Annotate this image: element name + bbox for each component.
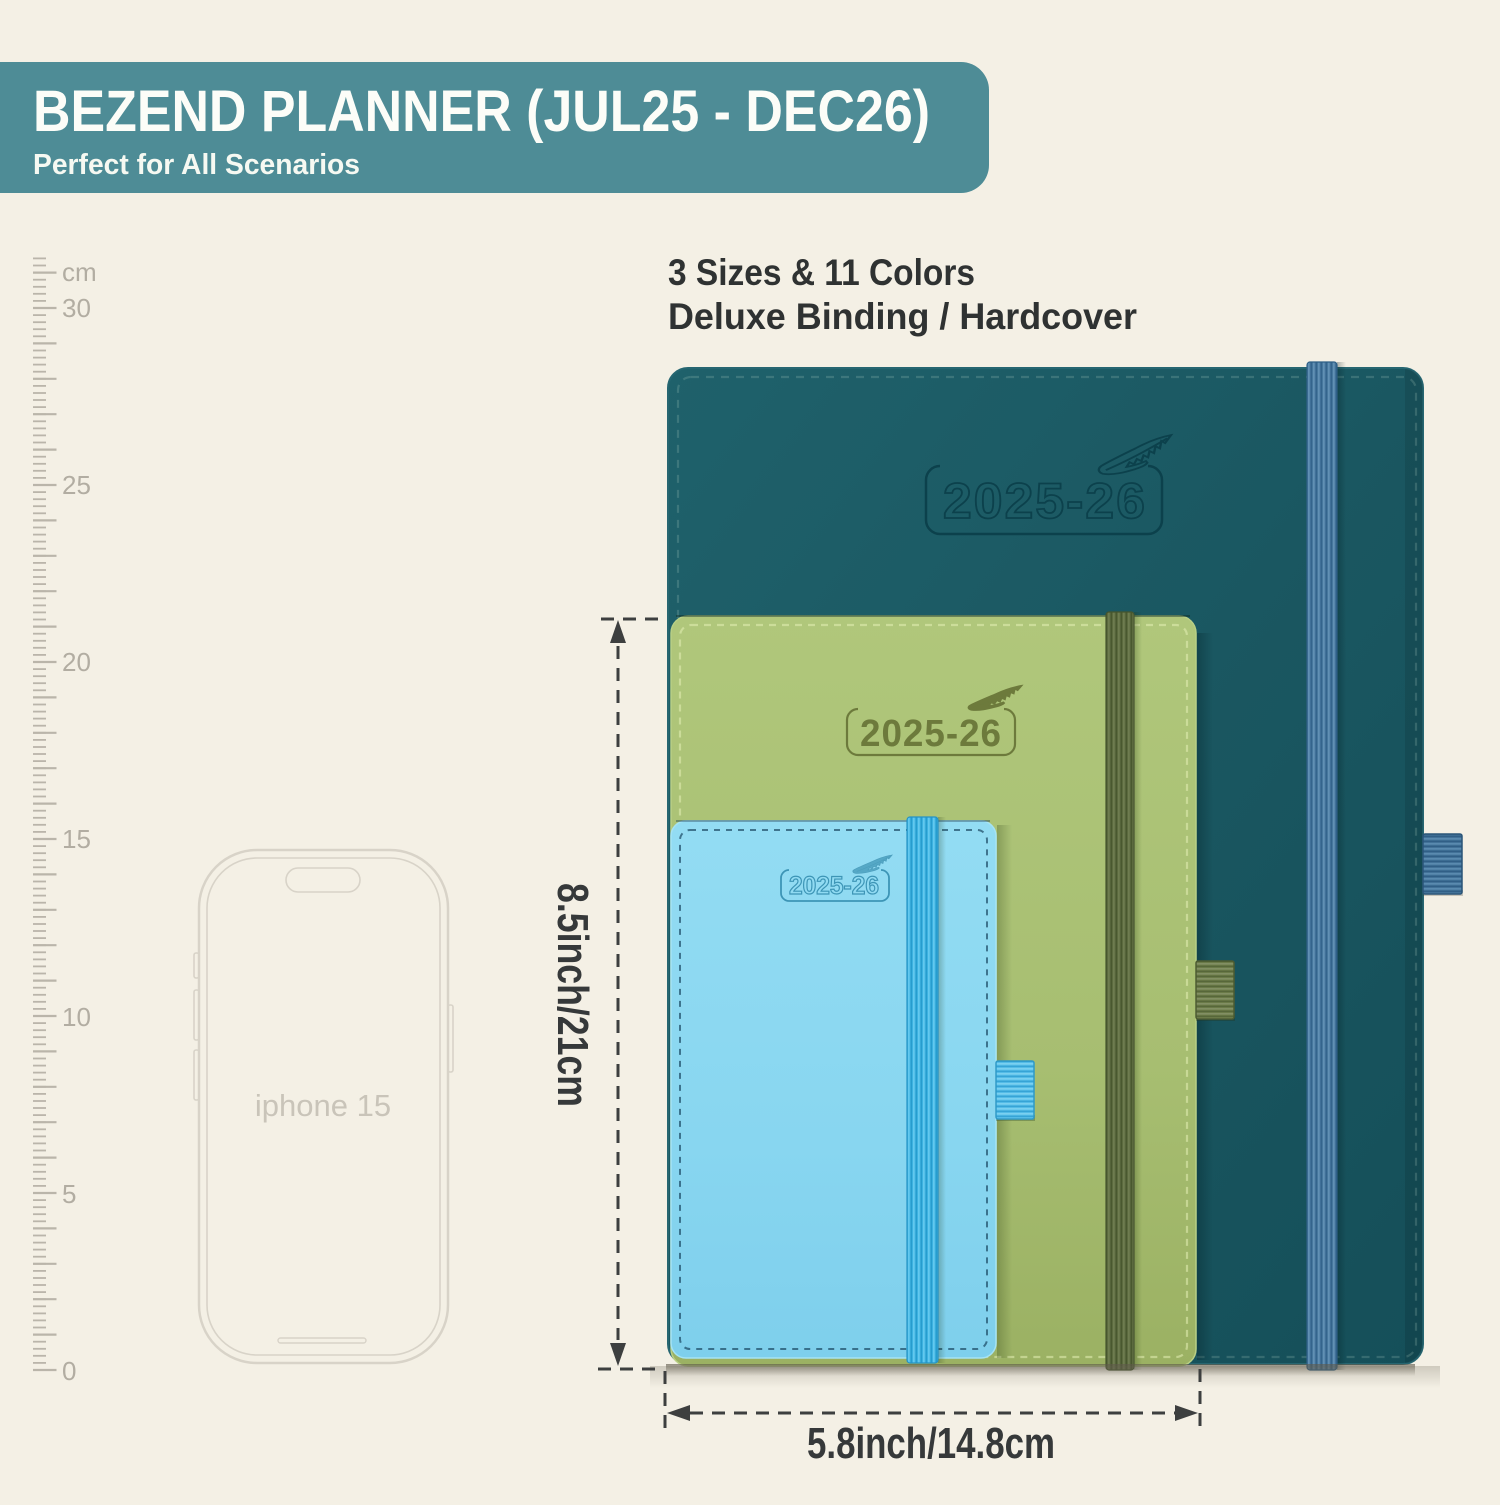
svg-text:2025-26: 2025-26 (943, 473, 1147, 529)
svg-text:30: 30 (62, 293, 91, 323)
svg-text:25: 25 (62, 470, 91, 500)
svg-text:2025-26: 2025-26 (860, 713, 1002, 755)
svg-text:BEZEND PLANNER (JUL25 - DEC26): BEZEND PLANNER (JUL25 - DEC26) (33, 79, 930, 144)
svg-text:Perfect for All Scenarios: Perfect for All Scenarios (33, 149, 360, 181)
svg-text:3 Sizes & 11 Colors: 3 Sizes & 11 Colors (668, 252, 975, 293)
svg-text:0: 0 (62, 1356, 76, 1386)
svg-text:cm: cm (62, 257, 97, 287)
svg-text:Deluxe Binding / Hardcover: Deluxe Binding / Hardcover (668, 296, 1137, 337)
svg-text:8.5inch/21cm: 8.5inch/21cm (548, 883, 597, 1107)
svg-text:5.8inch/14.8cm: 5.8inch/14.8cm (807, 1419, 1055, 1468)
svg-text:iphone 15: iphone 15 (255, 1088, 391, 1123)
svg-text:2025-26: 2025-26 (789, 872, 879, 900)
svg-text:5: 5 (62, 1179, 76, 1209)
svg-text:15: 15 (62, 824, 91, 854)
svg-text:10: 10 (62, 1002, 91, 1032)
svg-text:20: 20 (62, 647, 91, 677)
